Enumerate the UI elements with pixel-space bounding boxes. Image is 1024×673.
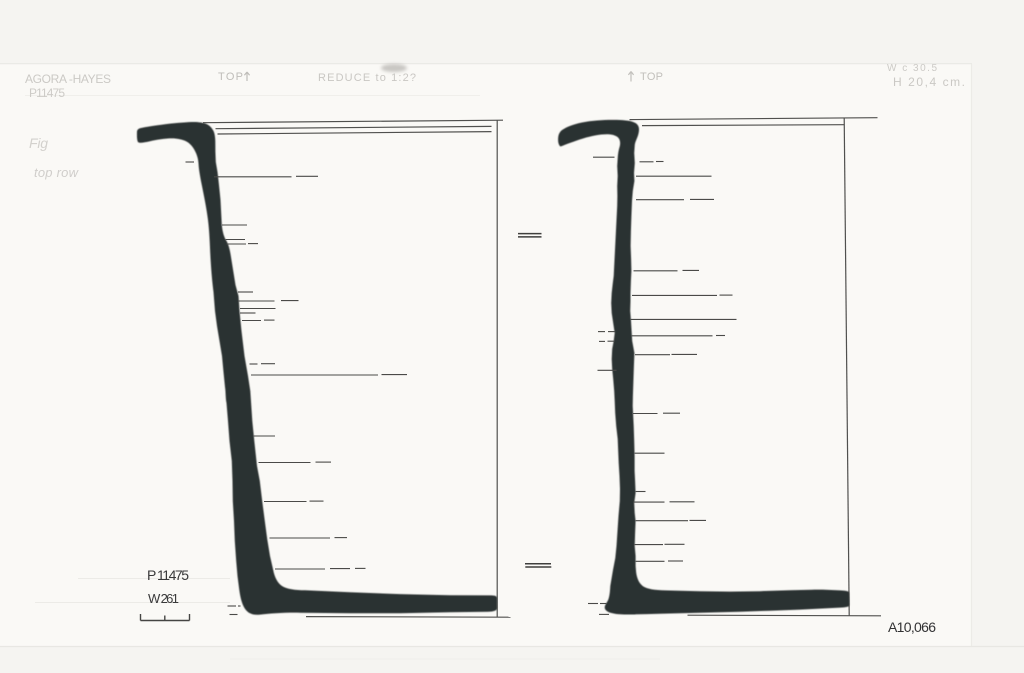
- svg-text:H 20,4 cm.: H 20,4 cm.: [893, 75, 965, 89]
- svg-text:AGORA -HAYES: AGORA -HAYES: [25, 72, 111, 86]
- svg-text:W 261: W 261: [148, 591, 179, 606]
- svg-text:P 11475: P 11475: [147, 567, 189, 583]
- svg-text:TOP: TOP: [640, 71, 663, 83]
- svg-text:A10,066: A10,066: [888, 619, 936, 635]
- svg-text:TOP: TOP: [218, 71, 243, 83]
- svg-text:P11475: P11475: [29, 86, 65, 100]
- svg-text:REDUCE to 1:2?: REDUCE to 1:2?: [318, 72, 416, 84]
- svg-text:Fig: Fig: [29, 135, 48, 151]
- svg-text:W c 30.5: W c 30.5: [887, 63, 937, 74]
- svg-text:top row: top row: [34, 165, 80, 180]
